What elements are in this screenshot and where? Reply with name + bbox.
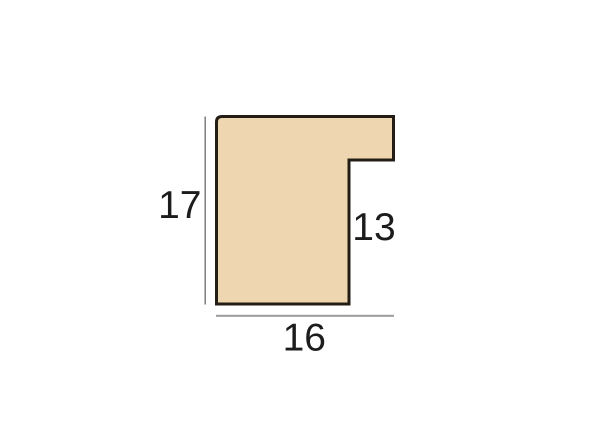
svg-text:13: 13 (352, 206, 395, 249)
svg-text:16: 16 (283, 316, 326, 359)
svg-text:17: 17 (158, 184, 201, 227)
